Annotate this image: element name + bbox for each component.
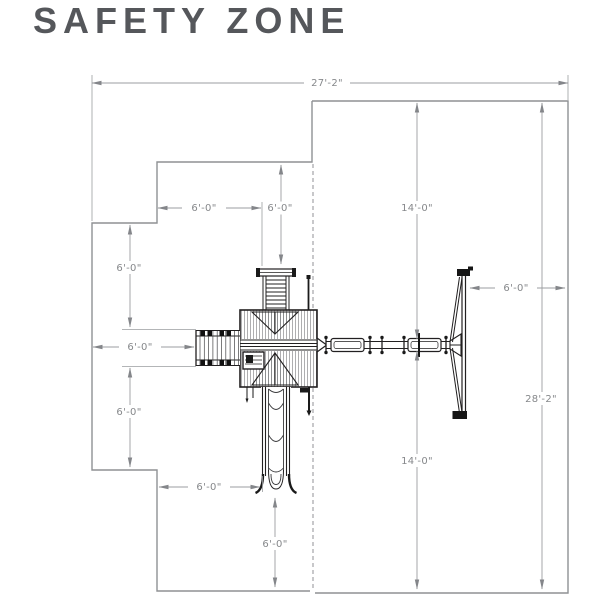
slide <box>256 387 297 493</box>
dim-label-swing-zone-lower: 14'-0" <box>401 456 433 467</box>
roof-ridge-band <box>241 339 317 351</box>
flag-pole <box>307 275 311 310</box>
swing-beam <box>324 333 461 357</box>
dimension-lines <box>92 75 568 589</box>
climber-ramp <box>256 268 296 310</box>
aframe-bracket <box>450 334 461 356</box>
safety-zone-drawing: 27'-2" 6'-0" 6'-0" 14'-0" 6'-0" 6'-0" 6'… <box>0 0 600 600</box>
beam-sleeve-right <box>408 339 441 352</box>
dim-label-total-width: 27'-2" <box>311 78 343 89</box>
monkey-bars <box>196 330 240 366</box>
dim-label-left-lower-clearance: 6'-0" <box>116 407 141 418</box>
dim-label-upper-step-width: 6'-0" <box>191 203 216 214</box>
safety-zone-page: SAFETY ZONE <box>0 0 600 600</box>
beam-sleeve-left <box>331 339 364 352</box>
dimension-label-backgrounds <box>110 76 564 550</box>
deck-roof <box>240 310 326 387</box>
dim-label-slide-end-clearance: 6'-0" <box>262 539 287 550</box>
dim-label-swing-end-clearance: 6'-0" <box>503 283 528 294</box>
dim-label-swing-zone-upper: 14'-0" <box>401 203 433 214</box>
a-frame-foot-bottom <box>453 411 468 419</box>
beam-apex-bracket <box>317 338 326 352</box>
dim-label-slide-side-clearance: 6'-0" <box>196 482 221 493</box>
dim-label-climber-clearance: 6'-0" <box>267 203 292 214</box>
dim-label-monkeybar-clearance: 6'-0" <box>127 342 152 353</box>
dim-label-left-upper-clearance: 6'-0" <box>116 263 141 274</box>
activity-panel <box>243 352 264 369</box>
dim-label-total-height: 28'-2" <box>525 394 557 405</box>
